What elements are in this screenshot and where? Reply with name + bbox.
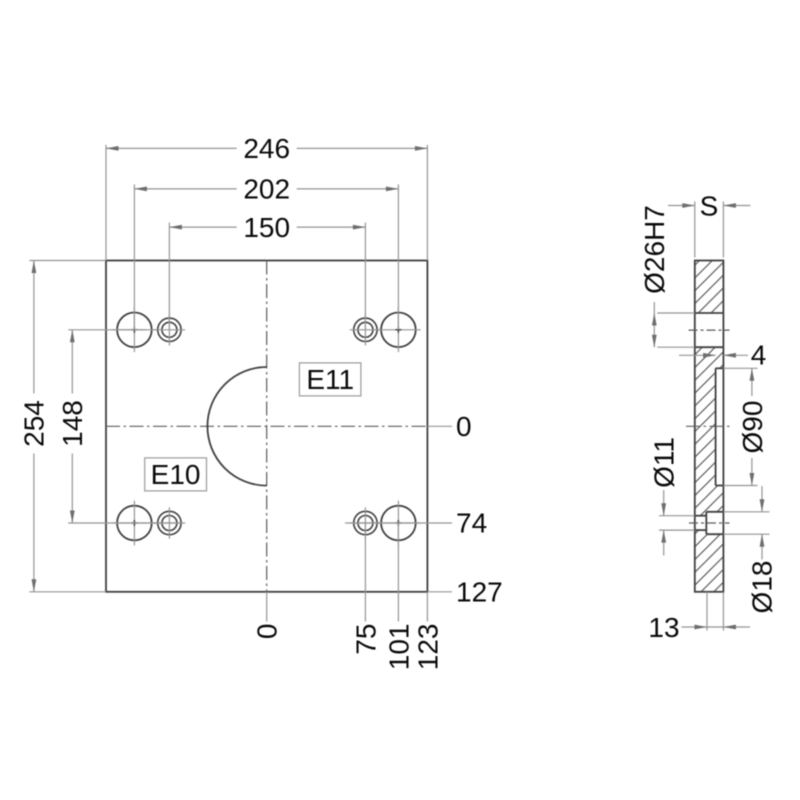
svg-text:Ø11: Ø11 xyxy=(649,437,680,488)
svg-text:Ø26H7: Ø26H7 xyxy=(639,205,670,294)
svg-text:254: 254 xyxy=(19,400,50,447)
svg-text:74: 74 xyxy=(456,508,487,539)
svg-text:75: 75 xyxy=(350,624,381,655)
svg-text:101: 101 xyxy=(383,624,414,671)
svg-text:202: 202 xyxy=(243,174,290,205)
svg-text:S: S xyxy=(700,190,719,221)
svg-text:E10: E10 xyxy=(151,459,201,490)
svg-text:13: 13 xyxy=(648,612,679,643)
svg-text:150: 150 xyxy=(243,212,290,243)
svg-text:E11: E11 xyxy=(306,364,354,395)
svg-text:0: 0 xyxy=(456,411,472,442)
svg-text:Ø90: Ø90 xyxy=(737,401,768,454)
svg-text:0: 0 xyxy=(252,624,283,640)
svg-text:4: 4 xyxy=(751,340,767,371)
svg-text:246: 246 xyxy=(243,133,290,164)
svg-text:Ø18: Ø18 xyxy=(747,561,778,614)
svg-text:123: 123 xyxy=(412,624,443,671)
svg-text:148: 148 xyxy=(57,400,88,447)
svg-text:127: 127 xyxy=(456,577,503,608)
